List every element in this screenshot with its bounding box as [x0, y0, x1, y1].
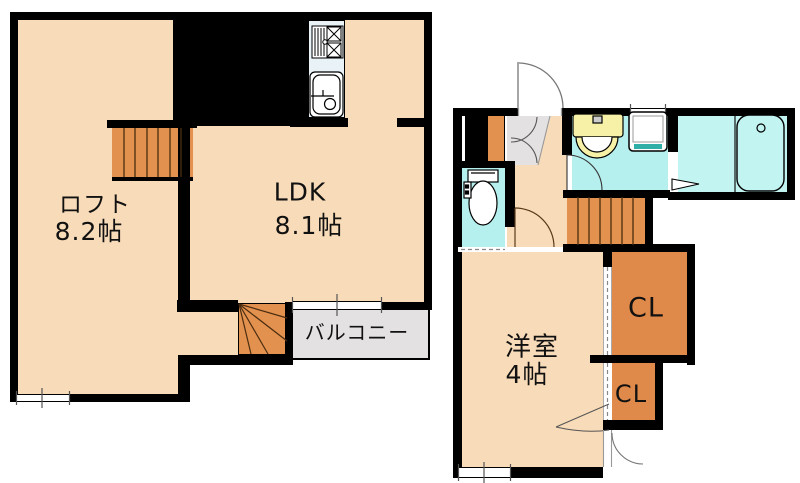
closet1-door-track [603, 267, 612, 355]
wall-segment [655, 355, 663, 430]
wall-segment [10, 12, 18, 402]
staircase [567, 197, 645, 245]
closet1-label: CL [628, 293, 664, 324]
winder-stairs [238, 303, 287, 355]
wall-segment [177, 300, 238, 312]
wall-segment [178, 355, 190, 402]
wall-segment [465, 113, 487, 163]
wall-segment [603, 420, 663, 430]
loft-size-label: 8.2帖 [55, 212, 124, 248]
wall-segment [562, 108, 795, 116]
floorplan-canvas: ロフト 8.2帖 LDK 8.1帖 バルコニー 洋室 4帖 CL CL [0, 0, 800, 483]
wall-segment [668, 108, 678, 155]
exterior-door-gap [603, 430, 612, 478]
balcony-label: バルコニー [305, 317, 410, 346]
wall-segment [424, 12, 432, 308]
wall-segment [178, 355, 293, 365]
wall-segment [668, 192, 795, 200]
toilet-floor [461, 167, 505, 247]
wall-segment [380, 302, 432, 310]
stair-bottom-line [112, 177, 193, 181]
washroom-window [630, 108, 666, 116]
wall-segment [590, 355, 695, 363]
western-room-size: 4帖 [506, 355, 549, 391]
wall-segment [563, 190, 670, 198]
closet2-door-track [603, 363, 612, 420]
ldk-room-label: LDK [274, 178, 327, 207]
wall-segment [505, 161, 515, 227]
toilet-opening [458, 247, 505, 252]
exterior-area [287, 360, 435, 405]
entrance-opening [518, 108, 562, 116]
wall-segment [562, 108, 572, 155]
stair-top-wall [107, 120, 197, 128]
wall-void-area [173, 12, 310, 126]
wall-segment [687, 245, 695, 365]
ldk-size-label: 8.1帖 [275, 206, 344, 242]
wall-segment [178, 126, 190, 312]
kitchen-counter [308, 20, 345, 118]
loft-window [16, 394, 70, 402]
wall-segment [285, 302, 293, 360]
balcony-window [292, 301, 382, 310]
closet2-label: CL [615, 380, 647, 408]
room-window [458, 467, 510, 478]
wall-segment [290, 118, 348, 127]
washroom-floor [572, 116, 668, 192]
wall-segment [563, 244, 695, 252]
wall-segment [787, 108, 795, 200]
wall-segment [603, 252, 612, 267]
shoe-cabinet [487, 113, 505, 163]
bathroom-floor [678, 116, 788, 192]
